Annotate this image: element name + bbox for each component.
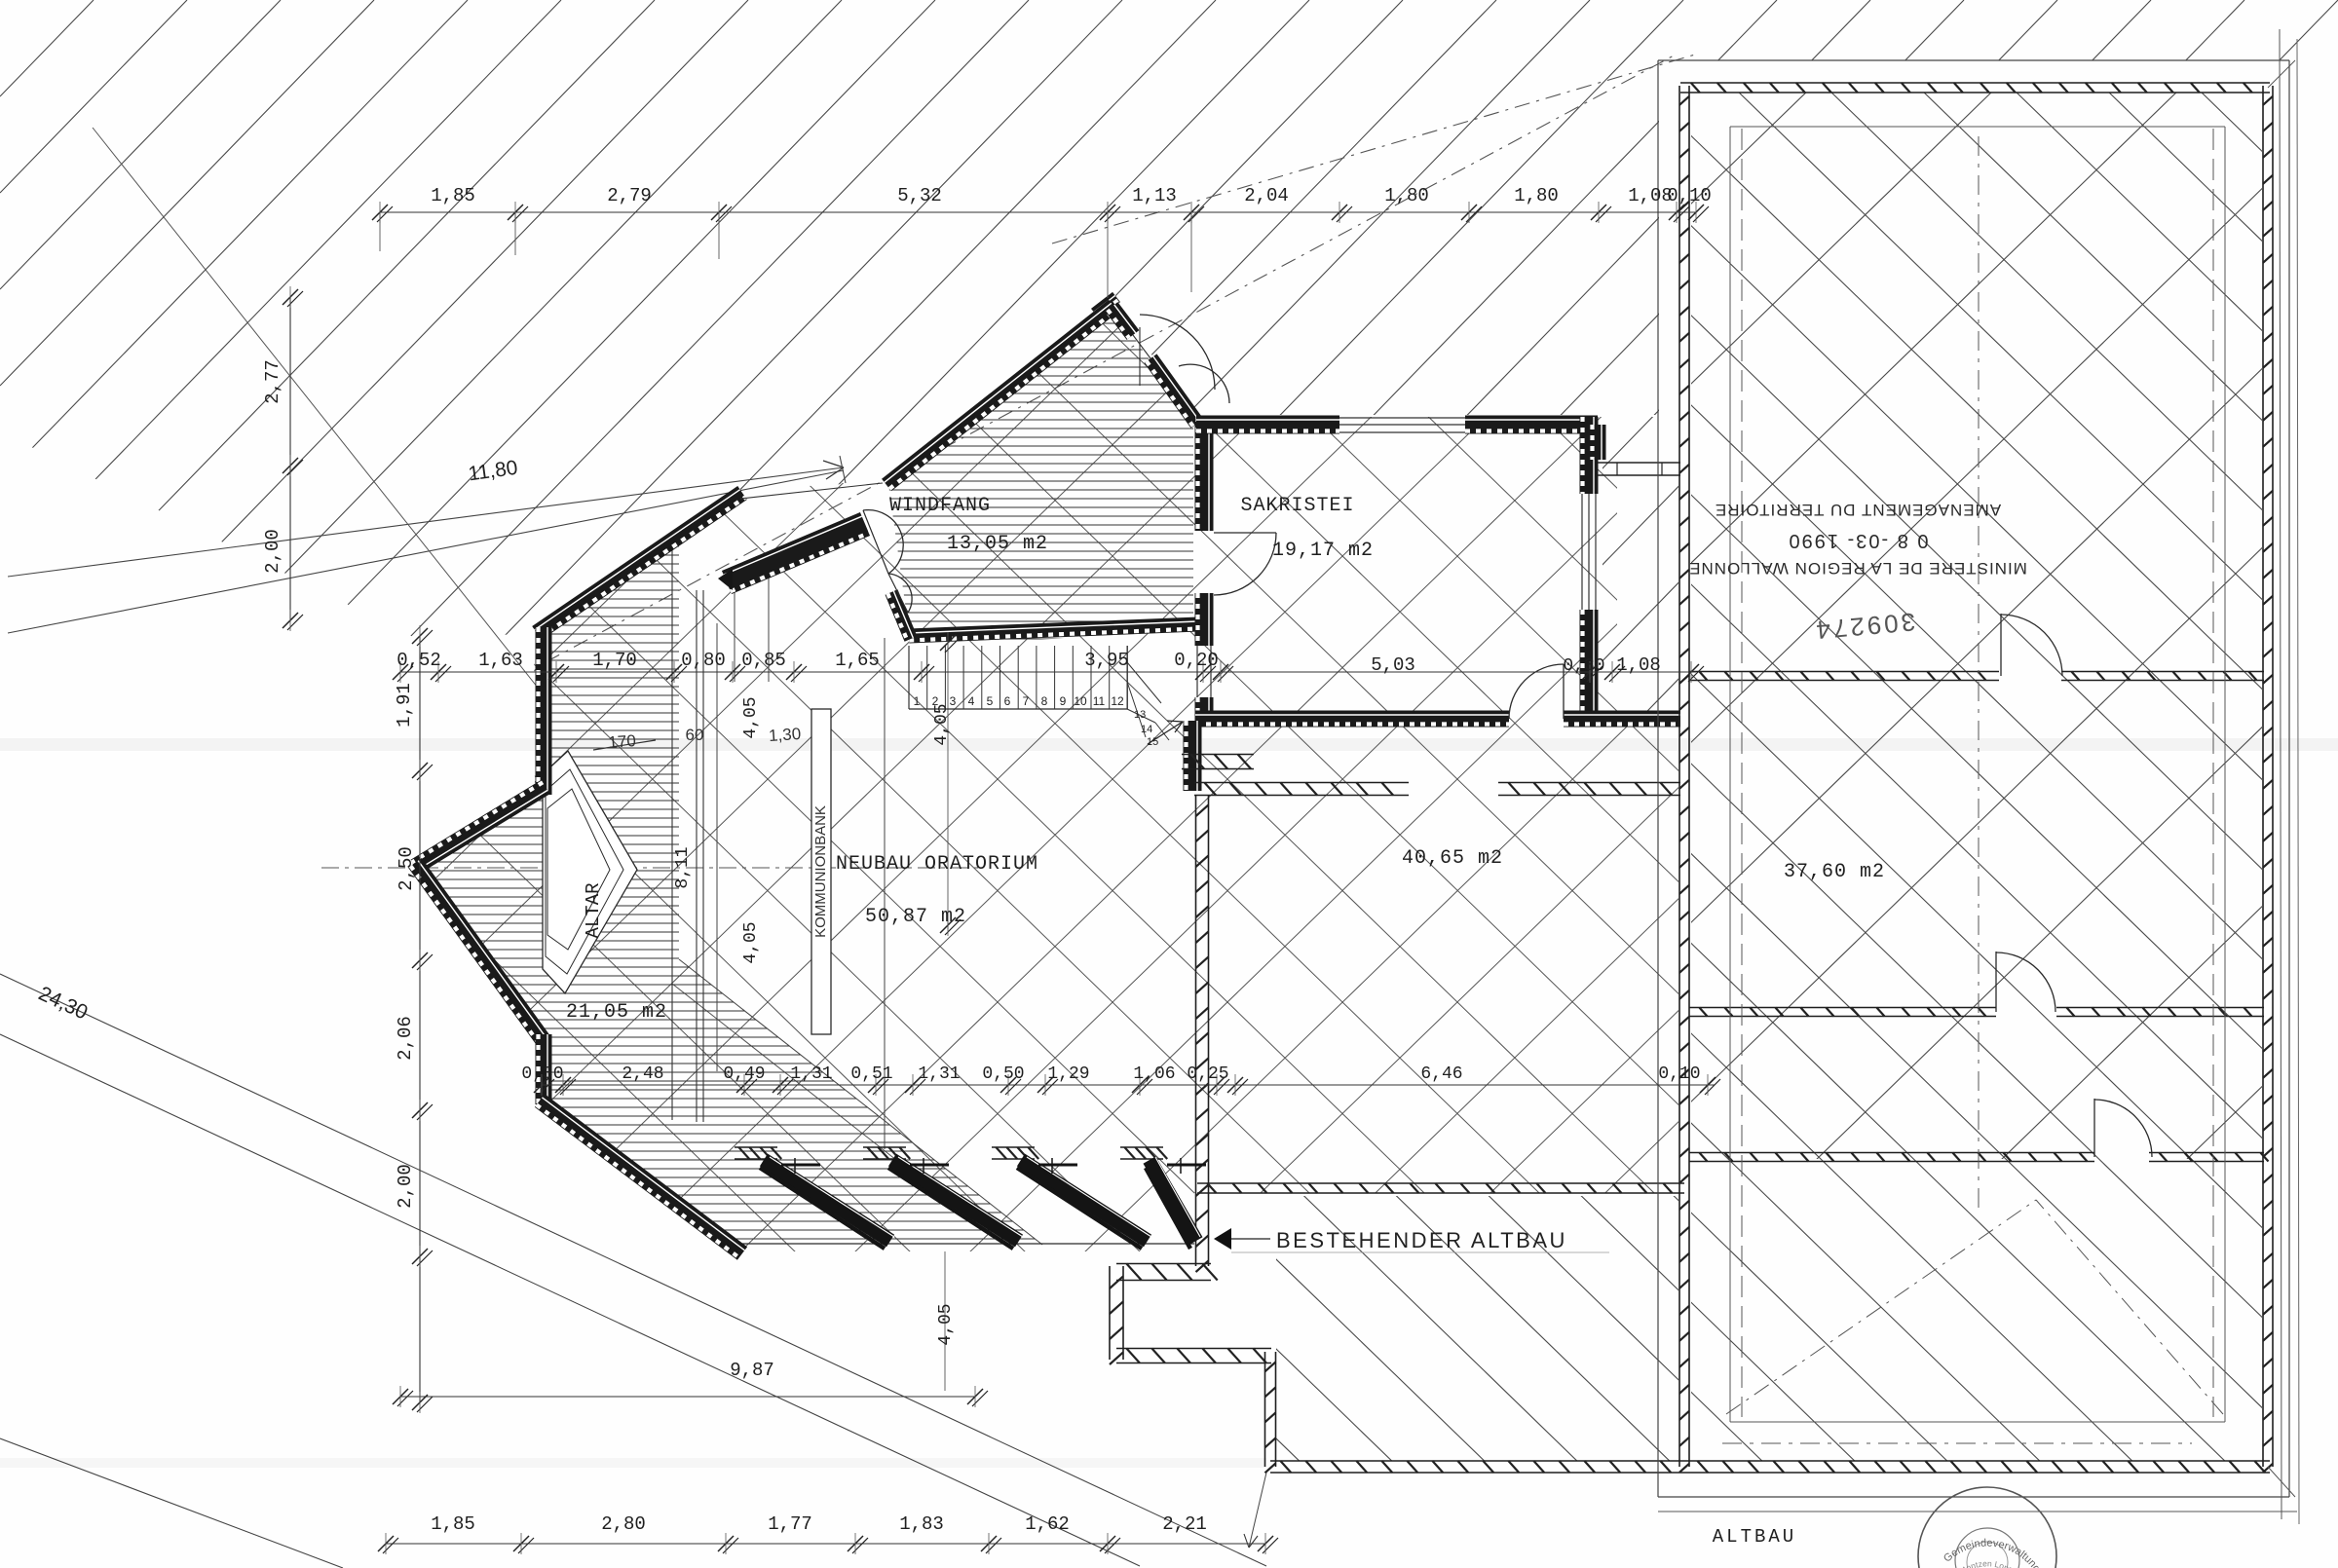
svg-text:1,91: 1,91 [394,683,415,728]
svg-text:2,80: 2,80 [601,1513,646,1535]
svg-text:0,10: 0,10 [1658,1064,1700,1084]
svg-text:0,30: 0,30 [521,1064,563,1084]
svg-text:13,05 m2: 13,05 m2 [947,533,1048,555]
svg-text:ALTAR: ALTAR [583,882,604,938]
svg-text:1,65: 1,65 [835,650,880,671]
svg-text:9,87: 9,87 [730,1360,774,1381]
svg-text:13: 13 [1134,709,1146,721]
svg-text:2,00: 2,00 [395,1164,416,1209]
svg-text:1,83: 1,83 [899,1513,944,1535]
svg-text:SAKRISTEI: SAKRISTEI [1240,495,1354,517]
svg-text:4,05: 4,05 [741,696,761,738]
svg-text:4: 4 [968,694,975,708]
svg-text:12: 12 [1111,694,1124,708]
svg-text:1,06: 1,06 [1133,1064,1175,1084]
svg-text:1,77: 1,77 [768,1513,812,1535]
svg-text:6,46: 6,46 [1420,1064,1462,1084]
svg-text:21,05 m2: 21,05 m2 [566,1001,667,1024]
svg-text:4,05: 4,05 [932,703,952,745]
svg-text:5,03: 5,03 [1371,654,1415,676]
svg-text:1,62: 1,62 [1025,1513,1070,1535]
svg-text:0,51: 0,51 [850,1064,892,1084]
svg-text:1,31: 1,31 [790,1064,832,1084]
svg-text:0 8 -03- 1990: 0 8 -03- 1990 [1788,530,1929,551]
svg-text:1,13: 1,13 [1132,185,1177,206]
svg-text:3,95: 3,95 [1084,650,1129,671]
svg-text:0,25: 0,25 [1187,1064,1228,1084]
svg-text:1,70: 1,70 [592,650,637,671]
svg-text:5,32: 5,32 [897,185,942,206]
svg-text:4,05: 4,05 [741,921,761,963]
svg-text:0,20: 0,20 [1174,650,1219,671]
svg-text:9: 9 [1060,694,1067,708]
svg-text:0,50: 0,50 [982,1064,1024,1084]
svg-text:1,30: 1,30 [768,725,801,745]
svg-text:1,85: 1,85 [431,185,475,206]
svg-text:BESTEHENDER ALTBAU: BESTEHENDER ALTBAU [1276,1228,1567,1252]
svg-text:1,85: 1,85 [431,1513,475,1535]
svg-text:1: 1 [914,694,921,708]
svg-text:2,04: 2,04 [1244,185,1289,206]
svg-text:0,85: 0,85 [741,650,786,671]
svg-text:ALTBAU: ALTBAU [1713,1526,1796,1548]
svg-text:2,79: 2,79 [607,185,652,206]
svg-text:1,63: 1,63 [478,650,523,671]
svg-text:2,06: 2,06 [395,1016,416,1061]
svg-text:50,87 m2: 50,87 m2 [865,906,966,928]
svg-text:2,48: 2,48 [622,1064,663,1084]
svg-text:19,17 m2: 19,17 m2 [1272,540,1374,562]
svg-text:WINDFANG: WINDFANG [889,495,991,517]
svg-text:170: 170 [608,731,637,752]
svg-text:8: 8 [1041,694,1048,708]
svg-text:0,10: 0,10 [1667,185,1712,206]
svg-text:1,80: 1,80 [1384,185,1429,206]
svg-text:AMENAGEMENT DU TERRITOIRE: AMENAGEMENT DU TERRITOIRE [1715,501,2001,519]
svg-text:8,11: 8,11 [673,846,693,888]
svg-text:2,00: 2,00 [262,529,283,574]
svg-text:0,49: 0,49 [723,1064,765,1084]
svg-text:40,65 m2: 40,65 m2 [1402,847,1503,870]
svg-text:1,29: 1,29 [1047,1064,1089,1084]
svg-text:MINISTERE DE LA REGION WALLONN: MINISTERE DE LA REGION WALLONNE [1688,559,2027,578]
svg-text:37,60 m2: 37,60 m2 [1784,861,1885,883]
svg-text:1,08: 1,08 [1628,185,1673,206]
svg-text:10: 10 [1074,694,1087,708]
svg-text:1,80: 1,80 [1514,185,1559,206]
svg-text:14: 14 [1141,724,1152,735]
svg-text:60: 60 [686,726,704,744]
svg-text:4,05: 4,05 [936,1303,956,1345]
svg-text:0,52: 0,52 [396,650,441,671]
svg-text:1,08: 1,08 [1616,654,1661,676]
svg-text:11: 11 [1093,694,1106,708]
svg-text:2,21: 2,21 [1162,1513,1207,1535]
svg-text:NEUBAU ORATORIUM: NEUBAU ORATORIUM [836,853,1038,876]
svg-text:6: 6 [1004,694,1011,708]
svg-text:KOMMUNIONBANK: KOMMUNIONBANK [812,805,829,938]
svg-text:1,31: 1,31 [918,1064,960,1084]
svg-text:5: 5 [987,694,994,708]
svg-text:2,77: 2,77 [262,359,283,404]
svg-text:7: 7 [1023,694,1030,708]
svg-text:0,80: 0,80 [681,650,726,671]
svg-text:0,30: 0,30 [1563,656,1604,676]
svg-text:2,50: 2,50 [396,846,417,891]
